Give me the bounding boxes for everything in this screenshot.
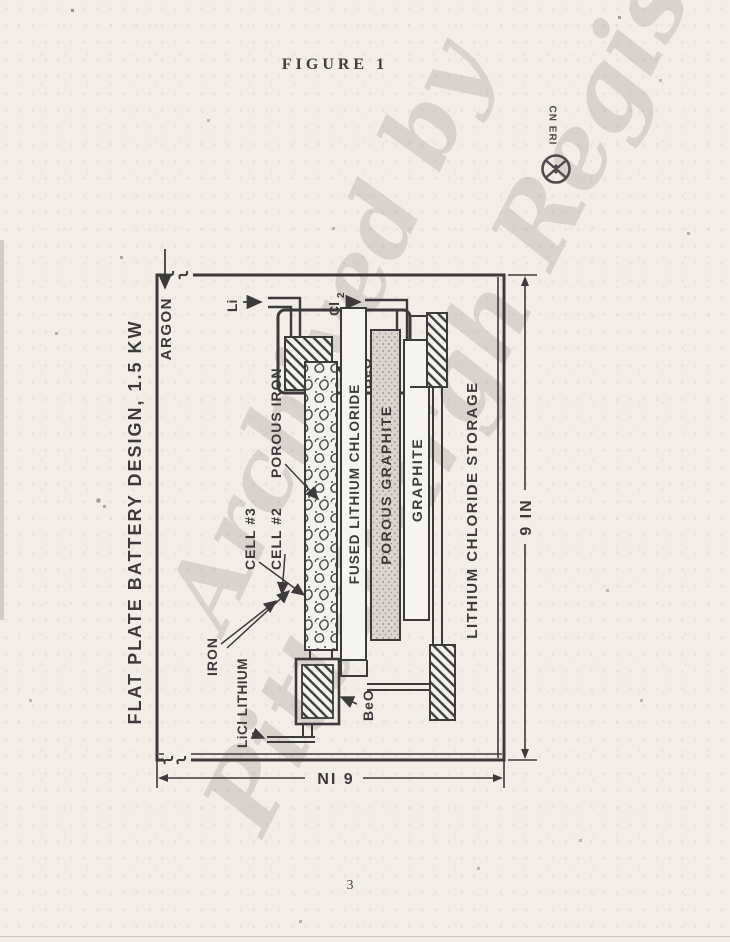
porous-iron-label: POROUS IRON [268,367,284,478]
scan-noise [0,0,1,1]
li-label: Li [224,300,240,312]
argon-inlet: ARGON [158,249,175,360]
lithium-feed-plate [267,737,315,742]
width-dimension: 9 IN [508,275,537,760]
registry-stamp: CN ERI [528,112,578,207]
pipe-break-right-icon [164,266,193,283]
scan-bottom-line [0,936,730,937]
scan-edge-artifact [0,240,4,620]
cl2-subscript: 2 [336,292,347,298]
argon-label: ARGON [158,297,175,360]
lithium-feed: Li [224,298,300,336]
pipe-break-left-icon [164,751,191,768]
callouts: IRON LiCl LITHIUM CELL #3 CELL #2 POROUS… [204,367,318,748]
licl-lithium-label: LiCl LITHIUM [235,658,250,748]
porous-iron-layer [305,362,337,650]
storage-seal-right [427,313,447,387]
storage-label: LITHIUM CHLORIDE STORAGE [464,381,481,638]
cell3-label: CELL #3 [242,507,258,570]
circled-x-stamp-icon [539,152,573,191]
fused-licl-label: FUSED LITHIUM CHLORIDE [347,384,362,585]
width-dimension-label: 9 IN [518,498,535,535]
battery-diagram: FLAT PLATE BATTERY DESIGN, 1.5 KW ARGON … [105,194,575,794]
height-dimension: 6 IN [157,760,504,788]
page-number: 3 [320,878,380,894]
figure-caption: FIGURE 1 [250,56,420,74]
porous-graphite-label: POROUS GRAPHITE [378,405,394,564]
beo-lower-block [302,665,333,718]
graphite-label: GRAPHITE [409,438,425,522]
step-frame [341,660,430,690]
beo-lower-label: BeO [360,689,376,721]
scanned-page: Archived by Pittsburgh Registry FIGURE 1… [0,0,730,942]
iron-label: IRON [204,637,220,676]
storage-seal-left [430,645,455,720]
beo-lower-leader [341,697,357,704]
cell2-label: CELL #2 [268,507,284,570]
li-pipe [268,298,300,336]
diagram-title: FLAT PLATE BATTERY DESIGN, 1.5 KW [125,319,145,724]
cathode-seal: BeO [267,650,430,742]
height-dimension-label: 6 IN [315,769,352,786]
